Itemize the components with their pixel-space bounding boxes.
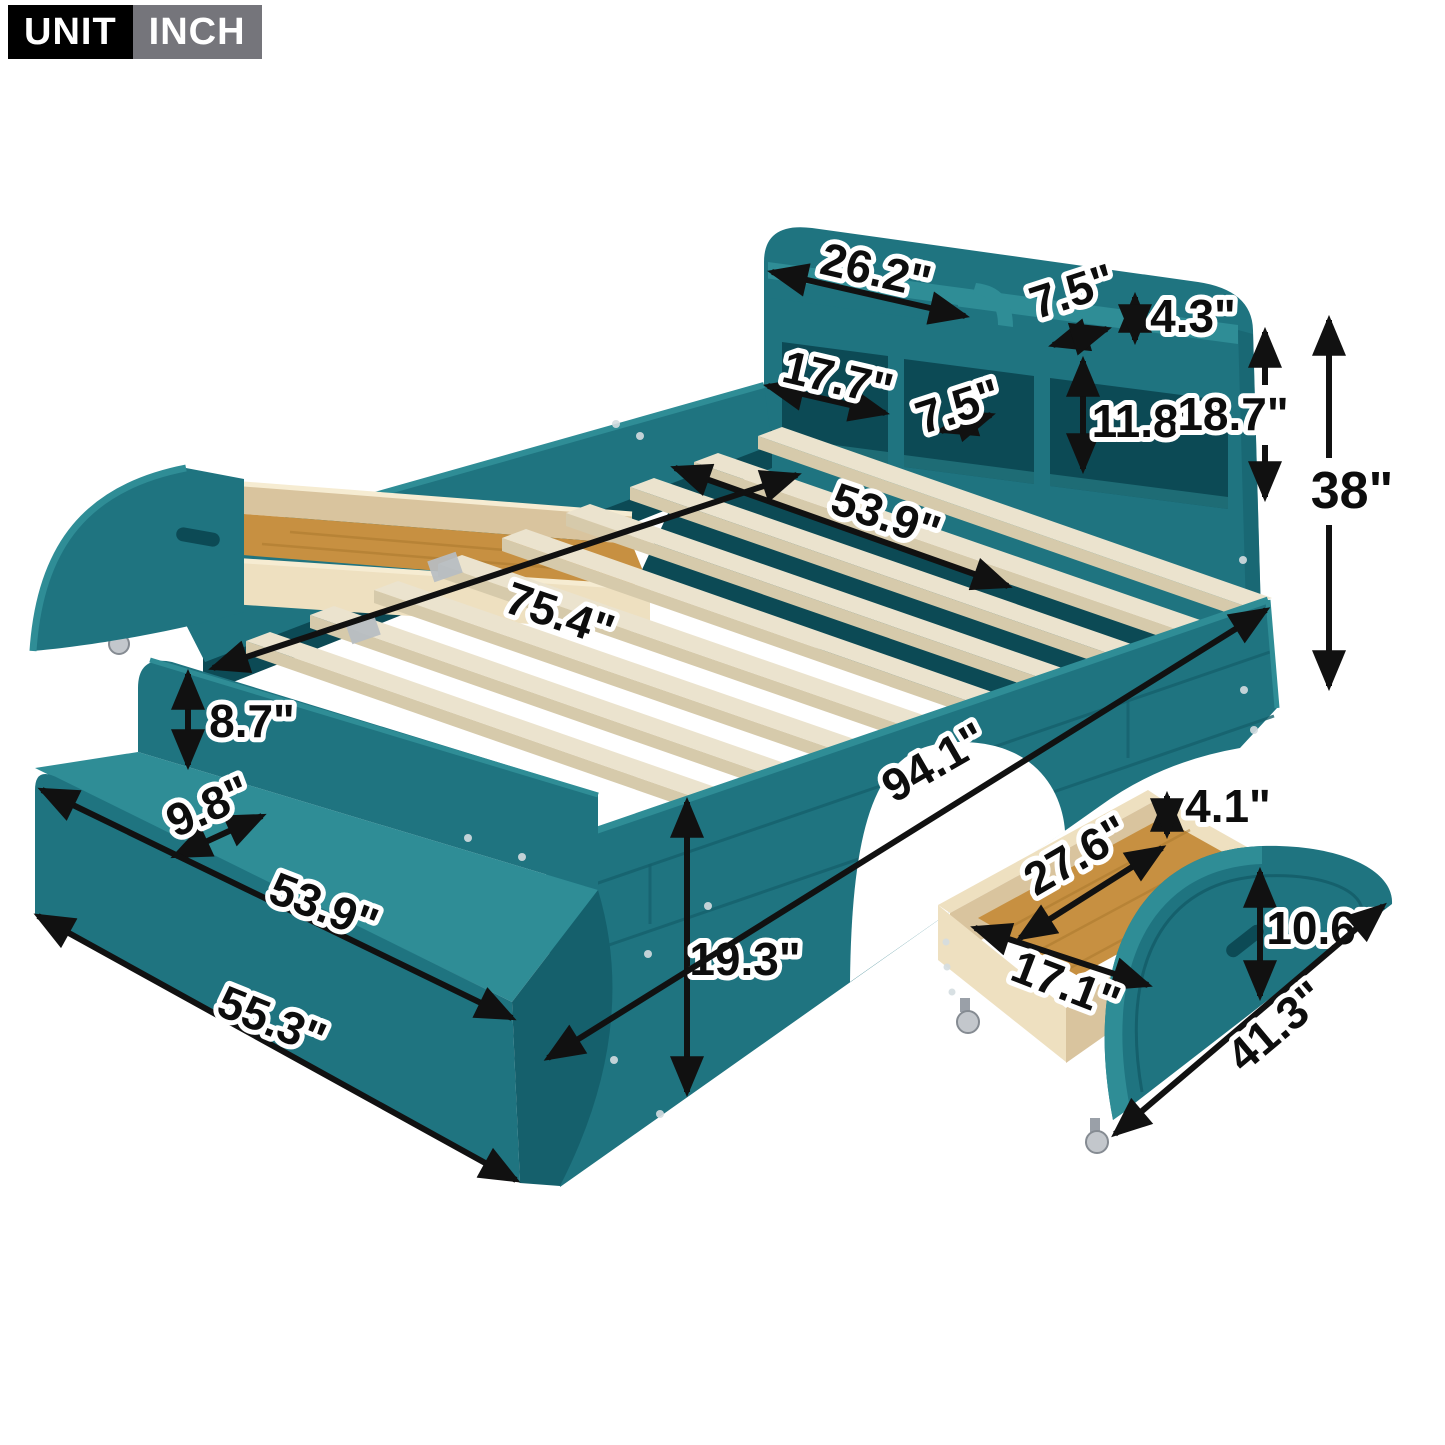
screw: [1239, 556, 1247, 564]
dim-label: 38": [1311, 462, 1394, 520]
screw: [944, 964, 951, 971]
dim-label: 4.3": [1150, 290, 1236, 342]
unit-badge-label: UNIT: [8, 5, 133, 59]
dim-label: 8.7": [209, 695, 295, 747]
unit-badge: UNIT INCH: [8, 5, 262, 59]
screw: [704, 902, 712, 910]
screw: [656, 1110, 664, 1118]
bed-diagram-svg: 26.2" 7.5" 4.3" 17.7" 7.5" 11.8": [0, 0, 1445, 1445]
screw: [1250, 726, 1258, 734]
screw: [610, 1056, 618, 1064]
caster-stem: [960, 998, 970, 1012]
screw: [943, 939, 950, 946]
screw: [464, 834, 472, 842]
unit-badge-value: INCH: [133, 5, 262, 59]
dim-headboard-top-shelf-height: 4.3": [1135, 290, 1236, 342]
dim-headboard-total-height: 38": [1311, 320, 1394, 686]
caster-wheel: [957, 1011, 979, 1033]
screw: [1240, 686, 1248, 694]
dim-label: 4.1": [1185, 780, 1271, 832]
product-dimension-diagram: 26.2" 7.5" 4.3" 17.7" 7.5" 11.8": [0, 0, 1445, 1445]
caster-stem: [1090, 1118, 1100, 1132]
caster-wheel: [1086, 1131, 1108, 1153]
screw: [949, 989, 956, 996]
screw: [612, 420, 620, 428]
screw: [644, 950, 652, 958]
screw: [636, 432, 644, 440]
screw: [518, 853, 526, 861]
dim-label: 18.7": [1177, 388, 1288, 440]
